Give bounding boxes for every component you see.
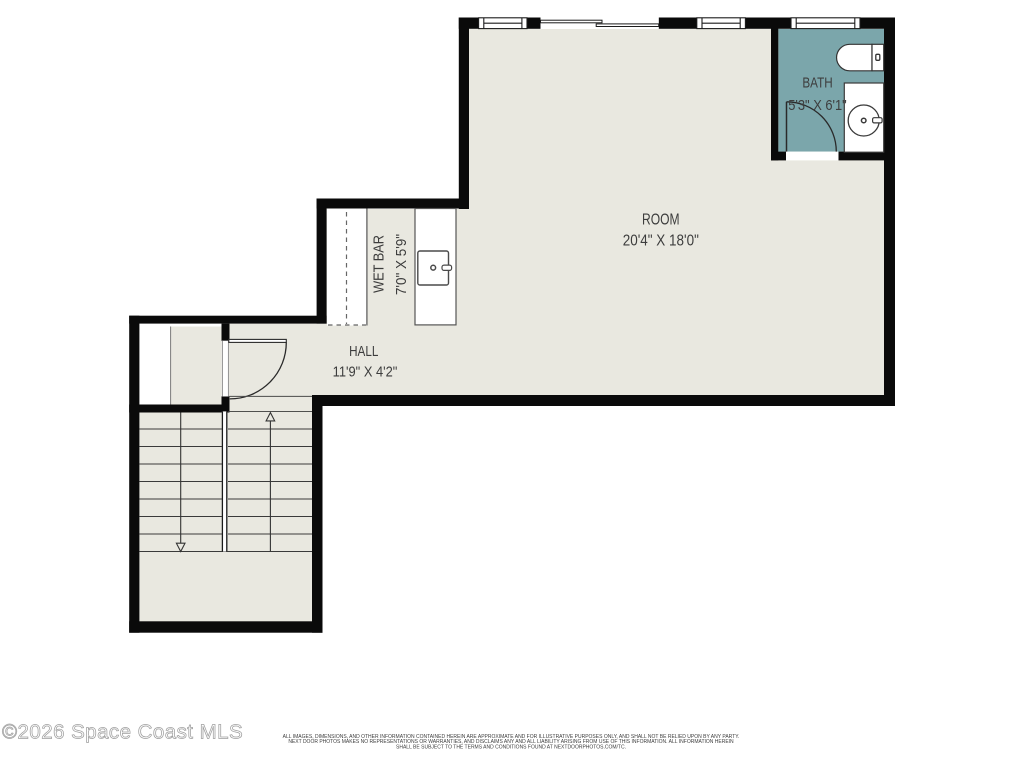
svg-text:11'9" X 4'2": 11'9" X 4'2" <box>333 363 398 380</box>
svg-text:HALL: HALL <box>349 342 379 359</box>
svg-text:7'0" X 5'9": 7'0" X 5'9" <box>393 234 410 295</box>
svg-text:ROOM: ROOM <box>642 210 680 228</box>
svg-text:SHALL BE SUBJECT TO THE TERMS: SHALL BE SUBJECT TO THE TERMS AND CONDIT… <box>396 745 626 751</box>
svg-text:5'3" X 6'1": 5'3" X 6'1" <box>788 96 847 113</box>
svg-text:20'4" X 18'0": 20'4" X 18'0" <box>623 233 699 250</box>
svg-text:BATH: BATH <box>802 74 832 91</box>
svg-text:©2026 Space Coast MLS: ©2026 Space Coast MLS <box>2 721 243 744</box>
svg-text:WET BAR: WET BAR <box>369 235 386 293</box>
